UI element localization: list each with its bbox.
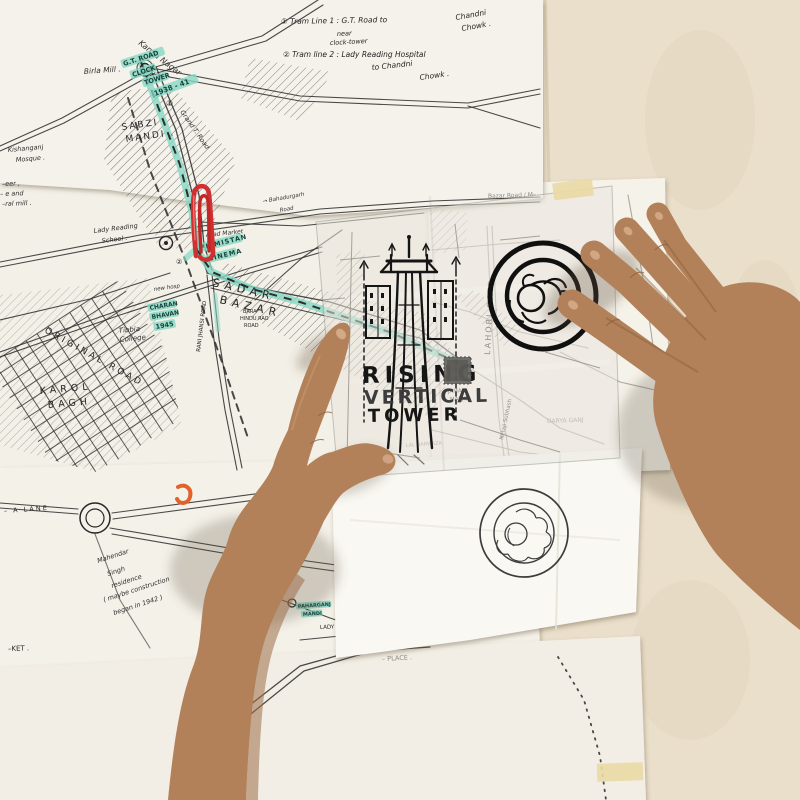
map-label-bara3: ROAD (244, 323, 259, 329)
map-label-frag2-text: – e and (0, 189, 25, 198)
tower-title-line3: TOWER (368, 404, 462, 427)
map-label-ket: –KET . (8, 644, 30, 653)
grey-square-block (444, 357, 471, 384)
photo-of-maps-on-wall: Kamla NagarBirla Mill .SABZIMANDI .G.T. … (0, 0, 800, 800)
tram-note-tram1a-text: ① Tram Line 1 : G.T. Road to (281, 15, 388, 26)
map-label-bara2-text: HINDU RAO (240, 316, 269, 322)
map-label-mk2-text: ② (176, 258, 182, 266)
map-label-frag2: – e and (0, 189, 25, 198)
map-label-ket-text: –KET . (8, 644, 30, 653)
map-label-frag3: –ral mill . (2, 199, 32, 208)
tracing-paper (316, 186, 620, 478)
map-label-bara2: HINDU RAO (240, 316, 269, 322)
tram-note-tram1d-text: near (337, 29, 353, 38)
map-label-bara1-text: BARA (243, 309, 257, 315)
map-label-place-text: – PLACE . (382, 653, 413, 663)
map-label-frag3-text: –ral mill . (2, 199, 32, 208)
map-label-frag1-text: –eer , (2, 179, 20, 188)
map-label-mk1-text: ① (166, 99, 173, 108)
scene-canvas: Kamla NagarBirla Mill .SABZIMANDI .G.T. … (0, 0, 800, 800)
junction-dot (164, 241, 168, 245)
tram-note-tram2a: ② Tram line 2 : Lady Reading Hospital (283, 50, 427, 59)
map-label-bara1: BARA (243, 309, 257, 315)
map-label-mk2: ② (176, 258, 182, 266)
map-label-frag1: –eer , (2, 179, 20, 188)
map-label-mk1: ① (166, 99, 173, 108)
map-label-bara3-text: ROAD (244, 323, 259, 329)
tram-note-tram1d: near (337, 29, 353, 38)
tram-note-tram2a-text: ② Tram line 2 : Lady Reading Hospital (283, 50, 427, 59)
tram-note-tram1a: ① Tram Line 1 : G.T. Road to (281, 15, 388, 26)
map-label-place: – PLACE . (382, 653, 413, 663)
